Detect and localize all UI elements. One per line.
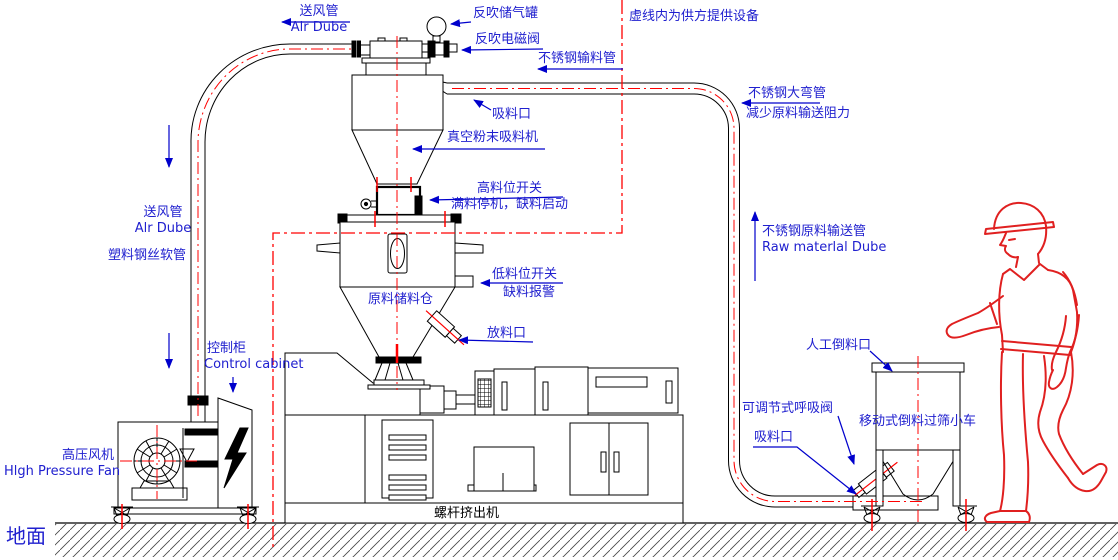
blowback-air-tank bbox=[427, 17, 446, 36]
label-high-level-switch: 高料位开关 满料停机，缺料启动 bbox=[477, 181, 568, 213]
suction-top-leader bbox=[474, 100, 491, 110]
label-raw-material-pipe: 不锈钢原料输送管 Raw materlal Dube bbox=[762, 224, 886, 256]
blowback-valve-leader bbox=[462, 49, 543, 50]
label-low-level-switch: 低料位开关 缺料报警 bbox=[492, 267, 557, 301]
label-manual-pour-port: 人工倒料口 bbox=[806, 338, 871, 354]
label-ss-feed-pipe: 不锈钢输料管 bbox=[538, 51, 616, 67]
pedestal-box bbox=[474, 447, 534, 491]
left-shoe bbox=[985, 511, 1030, 522]
ground-hatch bbox=[55, 523, 1118, 557]
left-leg bbox=[1000, 352, 1028, 511]
label-breathing-valve: 可调节式呼吸阀 bbox=[742, 401, 833, 417]
diagram-canvas: 送风管 Alr Dube 反吹储气罐 反吹电磁阀 不锈钢输料管 虚线内为供方提供… bbox=[0, 0, 1118, 560]
right-leg bbox=[1038, 352, 1083, 478]
screw-extruder bbox=[285, 353, 683, 523]
blowback-solenoid-valve bbox=[428, 41, 435, 57]
breathing-valve-leader bbox=[838, 416, 854, 464]
label-high-pressure-fan: 高压风机 Hlgh Pressure Fan bbox=[4, 448, 114, 480]
face bbox=[1000, 233, 1018, 257]
label-air-pipe-top: 送风管 Alr Dube bbox=[283, 4, 355, 36]
label-blowback-tank: 反吹储气罐 bbox=[473, 6, 538, 22]
left-arm bbox=[947, 296, 1003, 338]
gearbox-grille bbox=[478, 379, 491, 407]
label-boundary-note: 虚线内为供方提供设备 bbox=[629, 9, 759, 25]
line-art bbox=[0, 0, 1118, 560]
label-air-pipe-left: 送风管 Alr Dube bbox=[134, 205, 192, 237]
right-shoe bbox=[1068, 464, 1106, 491]
mobile-cart bbox=[851, 363, 977, 523]
high-pressure-fan bbox=[118, 405, 218, 508]
blowback-tank-leader bbox=[451, 22, 471, 24]
collar bbox=[1003, 264, 1048, 280]
right-arm bbox=[1049, 315, 1079, 389]
label-vacuum-feeder: 真空粉末吸料机 bbox=[447, 130, 538, 146]
label-screw-extruder: 螺杆挤出机 bbox=[434, 506, 499, 522]
label-plastic-hose: 塑料钢丝软管 bbox=[108, 248, 186, 264]
vacuum-powder-feeder bbox=[352, 17, 457, 215]
worker-figure bbox=[947, 203, 1107, 522]
label-suction-port-top: 吸料口 bbox=[492, 107, 531, 123]
feeder-discharge-box bbox=[377, 187, 420, 215]
low-level-switch bbox=[455, 276, 473, 287]
label-discharge-port: 放料口 bbox=[487, 326, 526, 342]
label-blowback-valve: 反吹电磁阀 bbox=[475, 32, 540, 48]
high-level-switch bbox=[415, 196, 422, 215]
label-ss-bend-pipe: 不锈钢大弯管 减少原料输送阻力 bbox=[748, 86, 850, 122]
suction-bottom-leader bbox=[753, 447, 856, 494]
label-storage-bin: 原料储料仓 bbox=[368, 292, 433, 308]
label-suction-port-bottom: 吸料口 bbox=[754, 430, 793, 446]
label-mobile-cart: 移动式倒料过筛小车 bbox=[859, 414, 976, 430]
label-ground: 地面 bbox=[6, 524, 46, 548]
label-control-cabinet: 控制柜 Control cabinet bbox=[204, 341, 303, 373]
